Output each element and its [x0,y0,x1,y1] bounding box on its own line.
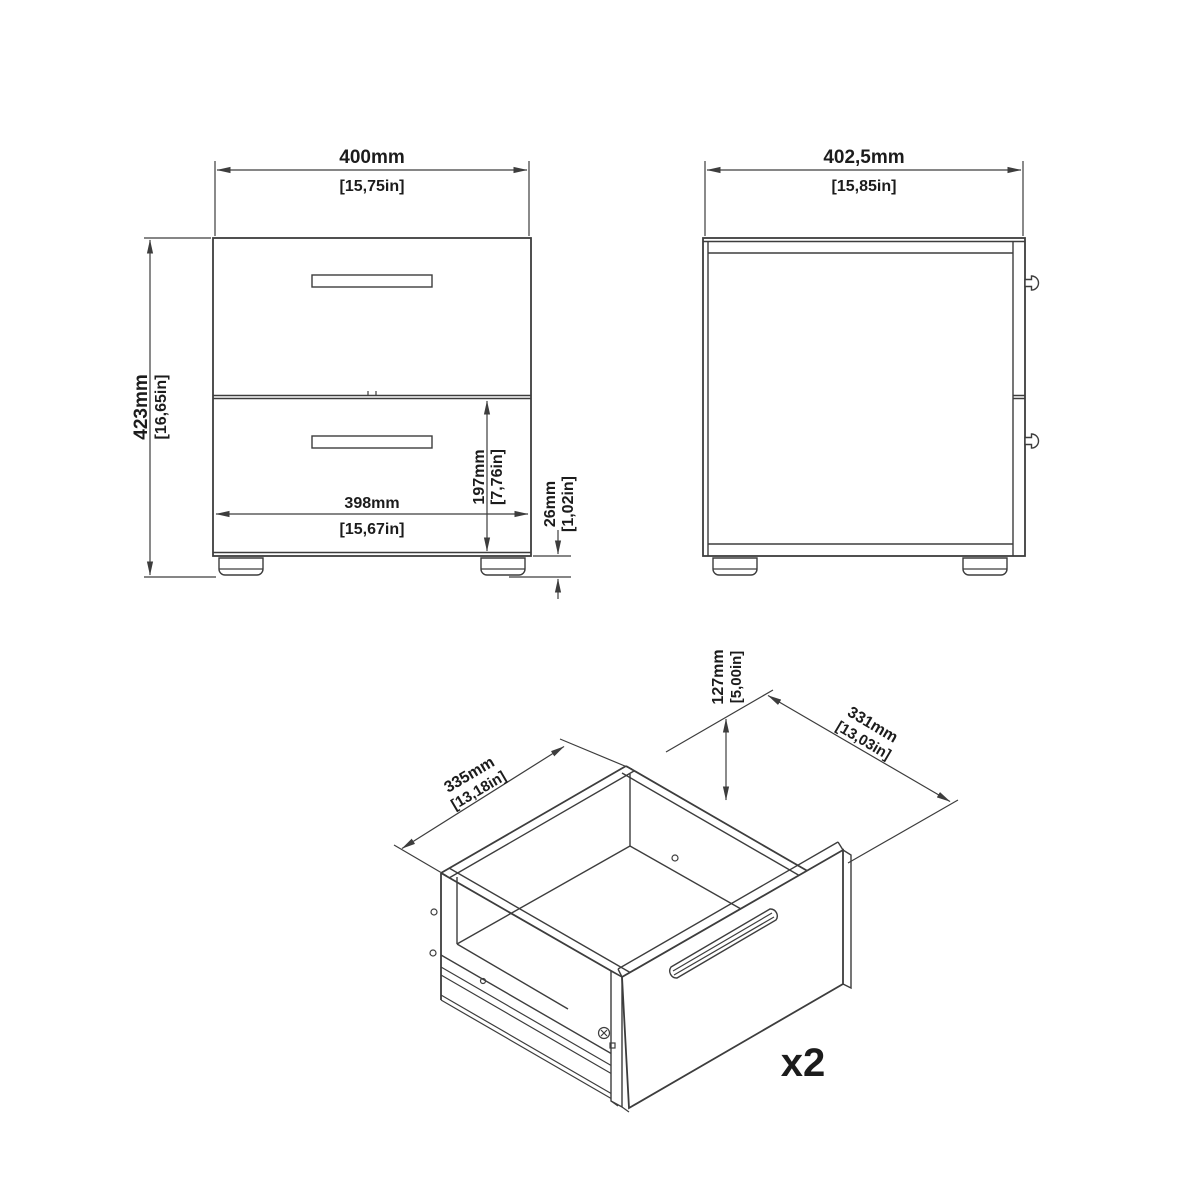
front-view: 400mm [15,75in] 423mm [16,65in] 398mm [1… [131,147,577,599]
drawer-left-rim-outer [441,873,620,976]
drawer-interior-bottom-right-edge [630,846,741,909]
front-foot-mm-label: 26mm [542,481,559,527]
side-drawer-front-gap [1013,396,1025,399]
technical-drawing-page: 400mm [15,75in] 423mm [16,65in] 398mm [1… [0,0,1200,1200]
drawer-isometric-view: 335mm [13,18in] 331mm [13,03in] 127mm [5… [394,649,958,1112]
side-bottom-knob [1025,434,1039,448]
side-right-foot [963,558,1007,575]
drawer-quantity-label: x2 [781,1041,826,1085]
drawer-right-rim-inner [622,773,807,880]
front-foot-height-dimension: 26mm [1,02in] [509,476,577,599]
side-left-foot [713,558,757,575]
front-right-foot [481,558,525,575]
side-depth-witness-lines [705,161,1023,236]
drawer-front-left-thickness-face [611,971,622,1107]
front-inner-width-mm-label: 398mm [344,495,399,512]
furniture-dimension-drawing: 400mm [15,75in] 423mm [16,65in] 398mm [1… [0,0,1200,1200]
front-width-mm-label: 400mm [339,147,405,168]
drawer-width-witness-lines [666,690,958,863]
front-left-foot [219,558,263,575]
front-drawer-height-dimension: 197mm [7,76in] [471,401,506,551]
drawer-width-dimension: 331mm [13,03in] [666,690,958,863]
drawer-cam-lock-cross [601,1030,607,1036]
front-height-mm-label: 423mm [131,374,152,440]
drawer-left-rim-inner [449,868,631,973]
side-depth-in-label: [15,85in] [832,178,897,195]
side-depth-dimension: 402,5mm [15,85in] [705,147,1023,236]
drawer-height-dimension: 127mm [5,00in] [710,649,745,800]
front-inner-width-in-label: [15,67in] [340,521,405,538]
drawer-slide-rail-lines [441,967,612,1099]
drawer-right-rim-outer [626,766,811,873]
front-height-in-label: [16,65in] [153,375,170,440]
side-depth-mm-label: 402,5mm [823,147,904,168]
front-drawer-height-in-label: [7,76in] [489,449,506,505]
drawer-height-in-label: [5,00in] [728,651,745,704]
drawer-hole-back-upper [431,909,437,915]
drawer-side-witness-lines [394,739,632,876]
drawer-side-dimension: 335mm [13,18in] [394,739,632,876]
front-width-witness-lines [215,161,529,236]
side-view: 402,5mm [15,85in] [703,147,1039,575]
drawer-interior-bottom-back-edge [457,846,630,944]
drawer-hole-right-wall [672,855,678,861]
side-top-knob [1025,276,1039,290]
drawer-left-panel-bottom-edge [441,955,612,1054]
front-foot-in-label: [1,02in] [560,476,577,532]
drawer-interior-bottom-left-edge [457,944,568,1009]
front-foot-witness-lines [509,556,571,577]
drawer-hole-back-lower [430,950,436,956]
drawer-front-panel-right-thickness [843,850,851,988]
drawer-height-mm-label: 127mm [710,649,727,704]
front-drawer-divider [213,396,531,399]
side-cabinet-outline [703,238,1025,556]
front-width-dimension: 400mm [15,75in] [215,147,529,236]
front-top-drawer-handle [312,275,432,287]
front-drawer-height-mm-label: 197mm [471,449,488,504]
front-width-in-label: [15,75in] [340,178,405,195]
front-height-dimension: 423mm [16,65in] [131,238,216,577]
front-bottom-drawer-handle [312,436,432,448]
